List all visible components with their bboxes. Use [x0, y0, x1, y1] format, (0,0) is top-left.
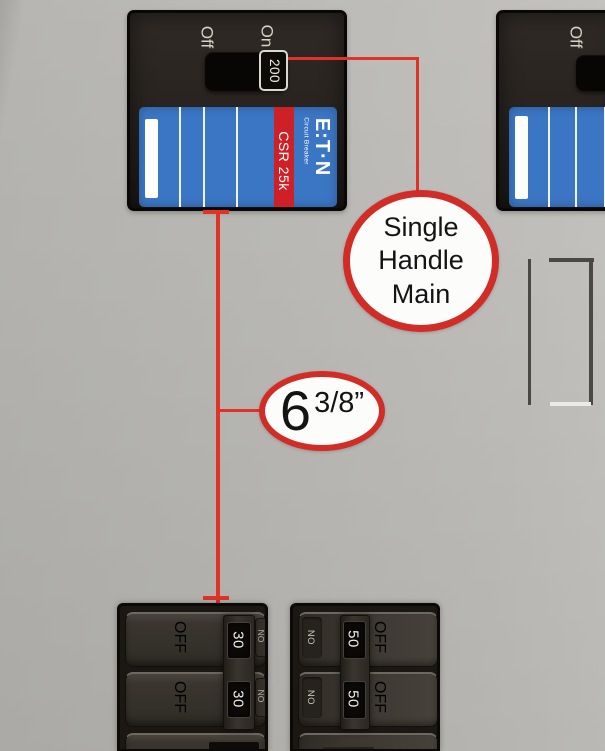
breaker-amp-label: 50 [346, 690, 361, 708]
secondary-breaker-handle [576, 55, 605, 91]
breaker-handle-partial [208, 741, 260, 751]
label-stripe [179, 107, 181, 207]
dimension-cap-bottom [203, 596, 229, 600]
callout-line: Handle [378, 244, 464, 278]
dimension-branch-line [219, 409, 263, 413]
callout-single-handle-text: Single Handle Main [378, 211, 464, 312]
slot-outline-right [589, 258, 593, 405]
slot-outline-bottom-highlight [550, 402, 591, 406]
main-breaker-label: CSR 25k Circuit Breaker E:T·N [139, 107, 337, 207]
measurement-text: 6 3/8” [280, 383, 364, 439]
label-white-bar [145, 119, 158, 198]
eaton-logo: E:T·N [312, 118, 332, 176]
main-breaker-amp-badge: 200 [259, 50, 288, 91]
main-breaker-off-label: Off [199, 26, 216, 48]
branch-panel-right: ON OFF ON OFF 50 50 [290, 603, 440, 751]
breaker-on-label: ON [307, 629, 317, 644]
label-stripe [203, 107, 205, 207]
breaker-amp-label: 50 [346, 630, 361, 648]
breaker-amp-box: 30 [227, 622, 251, 659]
callout-line: Single [378, 211, 464, 245]
model-text: CSR 25k [277, 131, 291, 191]
breaker-state-label: OFF [171, 621, 187, 653]
breaker-on-label: ON [307, 689, 317, 704]
secondary-breaker-off-label: Off [568, 26, 585, 48]
callout-line: Main [378, 278, 464, 312]
label-stripe [236, 107, 238, 207]
measurement-fraction: 3/8” [314, 389, 364, 418]
label-stripe [575, 107, 577, 207]
breaker-handle-partial [321, 746, 375, 751]
breaker-amp-label: 30 [231, 690, 246, 708]
callout-single-handle-main: Single Handle Main [343, 190, 499, 332]
breaker-amp-box: 50 [343, 681, 366, 719]
diagram-stage: Off On 200 CSR 25k Circuit Breaker E:T·N… [0, 0, 605, 751]
breaker-amp-box: 30 [227, 681, 251, 718]
main-breaker: Off On 200 CSR 25k Circuit Breaker E:T·N [127, 10, 347, 211]
breaker-off-label: OFF [371, 621, 387, 653]
breaker-amp-label: 30 [231, 631, 246, 649]
branch-panel-left: OFF ON OFF ON 30 30 [117, 603, 268, 751]
breaker-off-label: OFF [371, 681, 387, 713]
measurement-whole: 6 [280, 383, 311, 439]
callout-connector-vertical [416, 57, 420, 194]
breaker-hidden-on-label: ON [257, 630, 266, 643]
brand-subtext: Circuit Breaker [302, 117, 309, 164]
slot-outline-left [528, 259, 531, 405]
secondary-breaker-label [509, 107, 605, 207]
main-breaker-amp-label: 200 [267, 59, 281, 83]
secondary-breaker: Off [496, 10, 605, 211]
breaker-hidden-on-label: ON [257, 690, 266, 703]
slot-outline-top [549, 258, 594, 262]
callout-measurement: 6 3/8” [259, 371, 385, 451]
callout-connector-horizontal [288, 57, 418, 61]
main-breaker-on-label: On [259, 25, 276, 48]
breaker-amp-box: 50 [343, 621, 366, 659]
label-white-bar [515, 116, 528, 199]
breaker-state-label: OFF [171, 681, 187, 713]
label-stripe [548, 107, 550, 207]
